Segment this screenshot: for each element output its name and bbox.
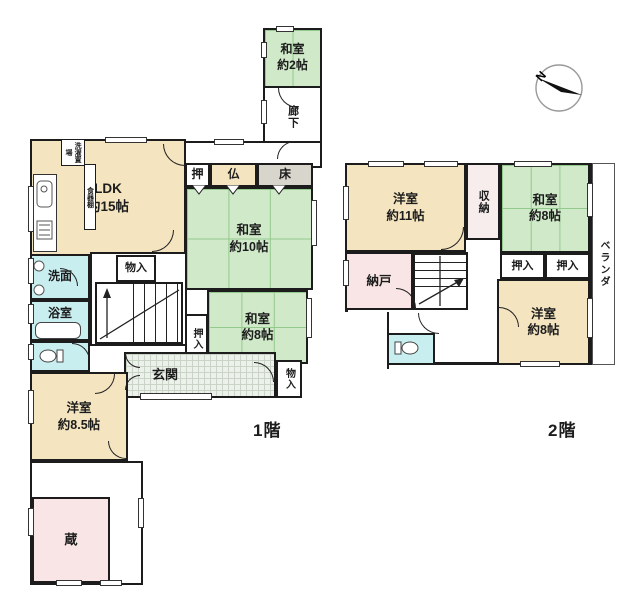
room-label: 洋室 bbox=[58, 400, 100, 416]
window-mark bbox=[306, 298, 312, 338]
sliding-door-chevrons bbox=[188, 185, 312, 195]
closet-oshi-cell: 押 bbox=[185, 163, 210, 187]
storage-monoire-stair: 物入 bbox=[116, 255, 156, 282]
laundry-area-box: 洗濯置場 bbox=[61, 139, 85, 166]
room-washitsu-10jo: 和室約10帖 bbox=[185, 187, 313, 290]
window-mark bbox=[276, 26, 294, 32]
floor-plan-canvas: 和室約2帖 廊下 LDK約15帖 洗濯置場 食器棚 押 仏 床 bbox=[0, 0, 640, 616]
room-label: 浴室 bbox=[48, 306, 72, 322]
room-label: 洗濯置場 bbox=[64, 142, 82, 164]
room-size: 約8帖 bbox=[529, 208, 561, 224]
room-size: 約10帖 bbox=[230, 239, 269, 255]
window-mark bbox=[28, 304, 34, 324]
room-label: 物入 bbox=[283, 368, 296, 390]
window-mark bbox=[28, 390, 34, 424]
room-label: 仏 bbox=[227, 167, 239, 183]
window-mark bbox=[587, 183, 593, 217]
room-washitsu-8jo-2f: 和室約8帖 bbox=[500, 163, 590, 253]
closet-oshiire-2f-b: 押入 bbox=[545, 253, 590, 279]
floor2-label: 2階 bbox=[548, 416, 576, 441]
window-mark bbox=[311, 200, 317, 246]
compass-icon: N bbox=[532, 62, 586, 116]
room-size: 約11帖 bbox=[386, 208, 424, 224]
window-mark bbox=[105, 137, 147, 143]
floor2-notch bbox=[342, 312, 389, 369]
tokonoma-cell: 床 bbox=[257, 163, 313, 187]
window-mark bbox=[28, 186, 34, 232]
room-label: 和室 bbox=[242, 311, 274, 327]
room-label: 洋室 bbox=[386, 191, 424, 207]
window-mark bbox=[520, 361, 560, 367]
window-mark bbox=[368, 161, 404, 167]
room-label: 和室 bbox=[277, 42, 308, 58]
room-label: 納戸 bbox=[366, 273, 391, 289]
room-size: 約8帖 bbox=[528, 322, 560, 338]
window-mark bbox=[214, 139, 244, 145]
entrance-door-mark bbox=[140, 393, 212, 400]
room-label: 洋室 bbox=[528, 306, 560, 322]
window-mark bbox=[343, 186, 349, 220]
room-label: 収納 bbox=[476, 190, 490, 214]
window-mark bbox=[56, 580, 82, 586]
room-label: 蔵 bbox=[64, 532, 77, 549]
window-mark bbox=[28, 258, 34, 284]
window-mark bbox=[514, 161, 552, 167]
window-mark bbox=[261, 100, 267, 124]
room-label: 押入 bbox=[557, 259, 579, 273]
room-shuno: 収納 bbox=[466, 163, 500, 240]
stair-arrow-icon bbox=[97, 284, 181, 342]
kitchen-sink-icon bbox=[34, 175, 56, 251]
room-washitsu-2jo: 和室約2帖 bbox=[263, 28, 322, 88]
bathtub-icon bbox=[35, 322, 81, 339]
room-label: 押入 bbox=[190, 328, 203, 350]
butsudan-cell: 仏 bbox=[210, 163, 257, 187]
toilet-icon-1f bbox=[37, 346, 65, 366]
room-label: 食器棚 bbox=[85, 187, 94, 208]
stair-arrow-icon bbox=[415, 254, 466, 308]
closet-oshiire-2f-a: 押入 bbox=[500, 253, 545, 279]
room-label: 玄関 bbox=[152, 367, 178, 384]
window-mark bbox=[100, 580, 122, 586]
toilet-icon-2f bbox=[393, 338, 421, 358]
room-label: 廊下 bbox=[285, 105, 299, 129]
window-mark bbox=[587, 298, 593, 338]
window-mark bbox=[28, 508, 34, 536]
room-label: 和室 bbox=[230, 222, 269, 238]
room-label: 和室 bbox=[529, 192, 561, 208]
room-label: ベランダ bbox=[597, 240, 610, 288]
floor1-label: 1階 bbox=[253, 416, 281, 441]
room-size: 約2帖 bbox=[277, 58, 308, 74]
cupboard-box: 食器棚 bbox=[84, 164, 96, 230]
window-mark bbox=[138, 498, 144, 528]
room-label: 床 bbox=[279, 167, 291, 183]
storage-monoire-genkan: 物入 bbox=[276, 360, 302, 398]
room-size: 約8帖 bbox=[242, 327, 274, 343]
window-mark bbox=[261, 42, 267, 58]
room-label: 押入 bbox=[512, 259, 534, 273]
stairs-1f bbox=[95, 282, 183, 344]
window-mark bbox=[424, 161, 458, 167]
room-size: 約8.5帖 bbox=[58, 417, 100, 433]
room-label: 物入 bbox=[125, 261, 147, 275]
veranda: ベランダ bbox=[592, 163, 615, 365]
window-mark bbox=[343, 260, 349, 286]
window-mark bbox=[28, 344, 34, 360]
stairs-2f bbox=[413, 252, 468, 310]
room-kura: 蔵 bbox=[32, 497, 110, 583]
room-label: 押 bbox=[191, 167, 203, 183]
sink-bowls-icon bbox=[32, 258, 46, 298]
kitchen-counter bbox=[33, 174, 57, 252]
